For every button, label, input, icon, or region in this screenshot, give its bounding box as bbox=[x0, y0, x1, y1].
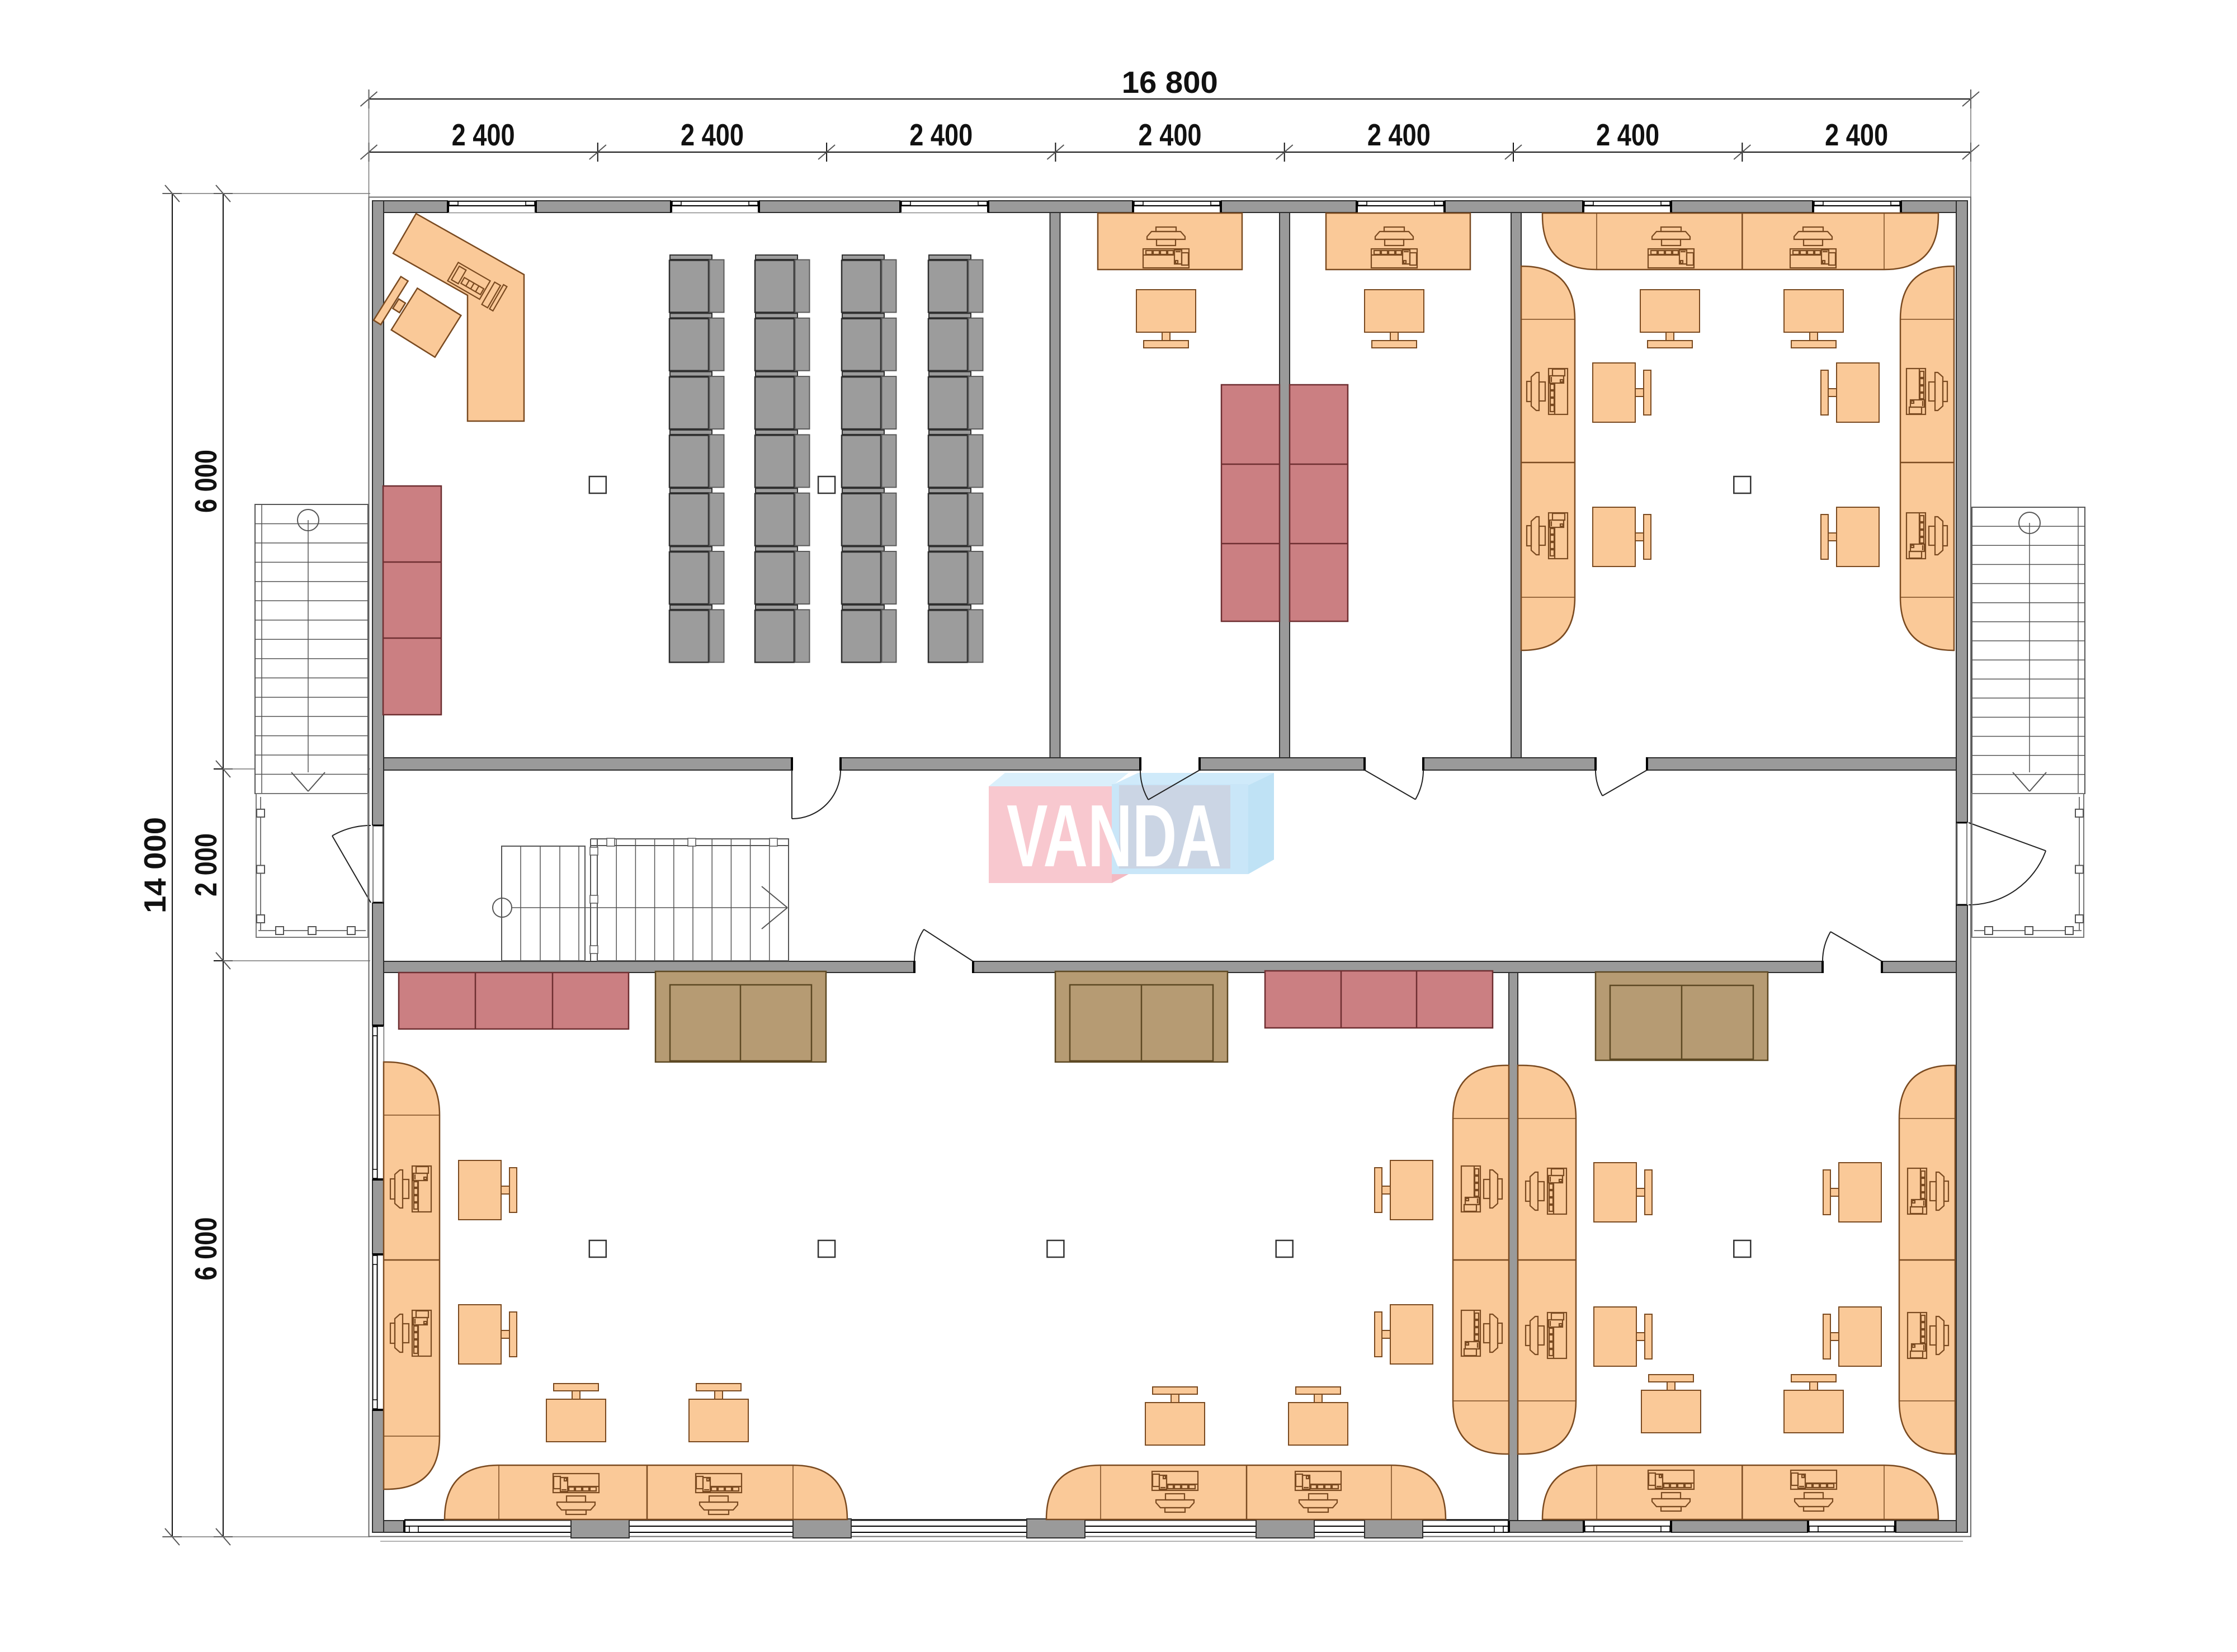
svg-text:2 400: 2 400 bbox=[909, 117, 973, 152]
svg-text:2 400: 2 400 bbox=[1139, 117, 1202, 152]
svg-text:2 000: 2 000 bbox=[188, 833, 223, 896]
svg-text:14 000: 14 000 bbox=[138, 817, 172, 913]
svg-text:VANDA: VANDA bbox=[1007, 787, 1221, 885]
svg-text:2 400: 2 400 bbox=[452, 117, 515, 152]
svg-text:6 000: 6 000 bbox=[188, 450, 223, 513]
svg-text:16 800: 16 800 bbox=[1122, 65, 1218, 100]
svg-text:2 400: 2 400 bbox=[1367, 117, 1431, 152]
svg-text:2 400: 2 400 bbox=[1825, 117, 1888, 152]
svg-text:2 400: 2 400 bbox=[1596, 117, 1659, 152]
svg-text:2 400: 2 400 bbox=[681, 117, 744, 152]
svg-text:6 000: 6 000 bbox=[188, 1217, 223, 1281]
